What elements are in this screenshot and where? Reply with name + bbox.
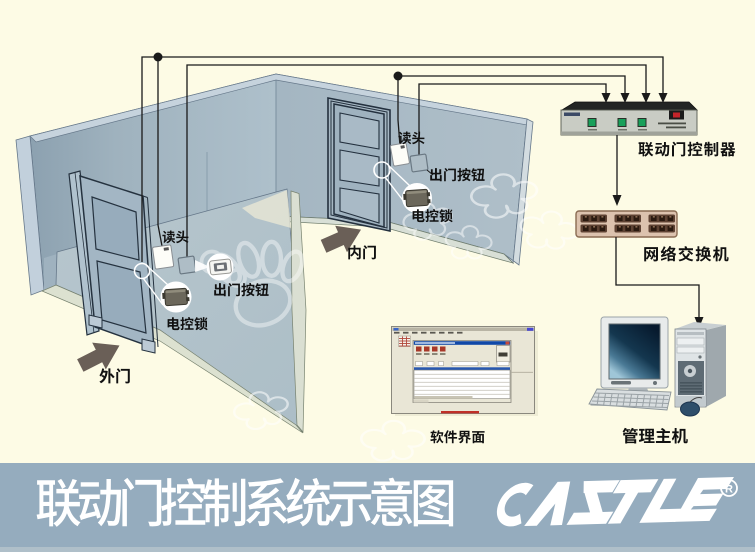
svg-text:R: R [725,484,733,496]
